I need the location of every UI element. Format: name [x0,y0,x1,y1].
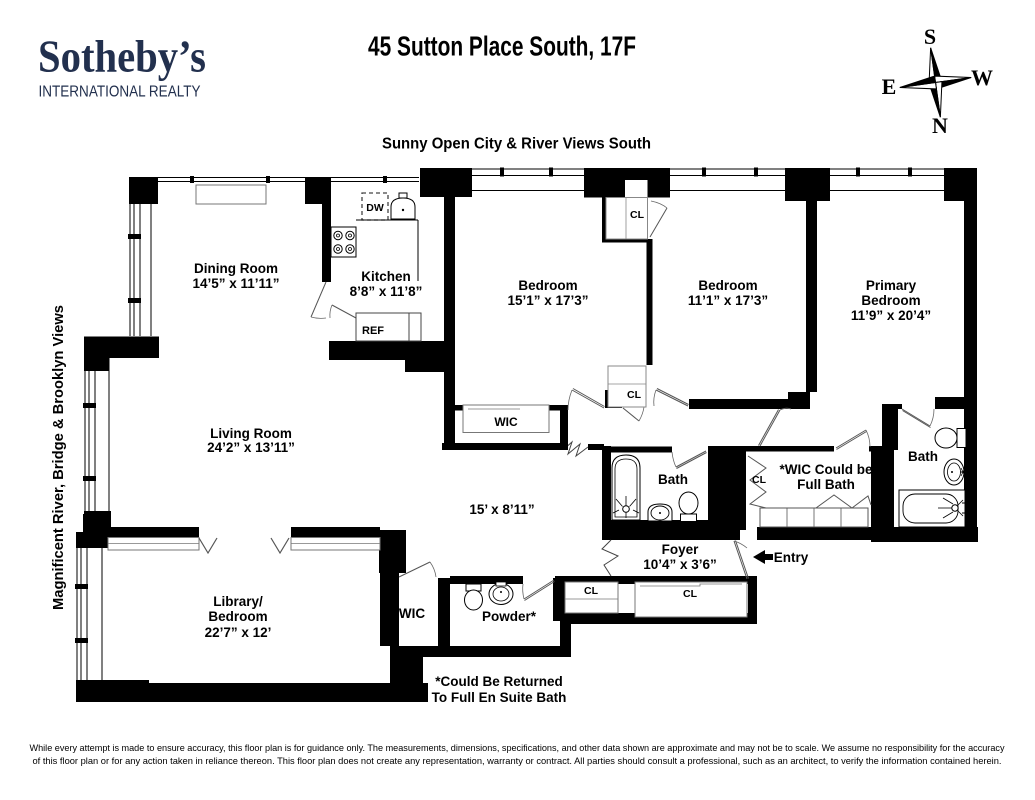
svg-text:15’ x 8’11”: 15’ x 8’11” [469,502,534,517]
svg-text:REF: REF [362,325,384,337]
svg-text:Living Room24’2” x 13’11”: Living Room24’2” x 13’11” [207,426,295,455]
svg-text:Library/Bedroom22’7” x 12’: Library/Bedroom22’7” x 12’ [205,594,272,640]
svg-text:Bath: Bath [908,449,938,464]
svg-text:N: N [932,113,948,138]
svg-text:S: S [924,24,936,49]
svg-text:WIC: WIC [399,606,425,621]
svg-text:CL: CL [630,209,645,221]
svg-text:DW: DW [366,202,384,214]
svg-text:WIC: WIC [494,415,518,429]
svg-text:E: E [882,74,897,99]
svg-text:While every attempt is made to: While every attempt is made to ensure ac… [30,742,1005,753]
svg-text:CL: CL [683,588,698,600]
svg-text:Bedroom11’1” x 17’3”: Bedroom11’1” x 17’3” [688,278,768,308]
svg-text:*Could Be ReturnedTo Full En S: *Could Be ReturnedTo Full En Suite Bath [432,674,567,705]
svg-text:CL: CL [584,585,599,597]
svg-text:Sotheby’s: Sotheby’s [38,32,206,82]
svg-text:CL: CL [627,389,642,401]
svg-text:Dining Room14’5” x 11’11”: Dining Room14’5” x 11’11” [192,261,279,291]
svg-text:Bath: Bath [658,472,688,487]
svg-text:Entry: Entry [774,550,809,565]
svg-text:45 Sutton Place South, 17F: 45 Sutton Place South, 17F [368,31,636,62]
svg-text:Sunny Open City & River Views: Sunny Open City & River Views South [382,136,651,153]
svg-text:Magnificent River, Bridge & Br: Magnificent River, Bridge & Brooklyn Vie… [51,305,67,610]
svg-text:of this floor plan or for any: of this floor plan or for any action tak… [33,755,1002,766]
svg-text:INTERNATIONAL REALTY: INTERNATIONAL REALTY [39,84,201,101]
svg-text:W: W [971,65,993,90]
svg-text:Powder*: Powder* [482,609,537,624]
svg-text:Bedroom15’1” x 17’3”: Bedroom15’1” x 17’3” [507,278,588,308]
svg-text:CL: CL [752,474,767,486]
